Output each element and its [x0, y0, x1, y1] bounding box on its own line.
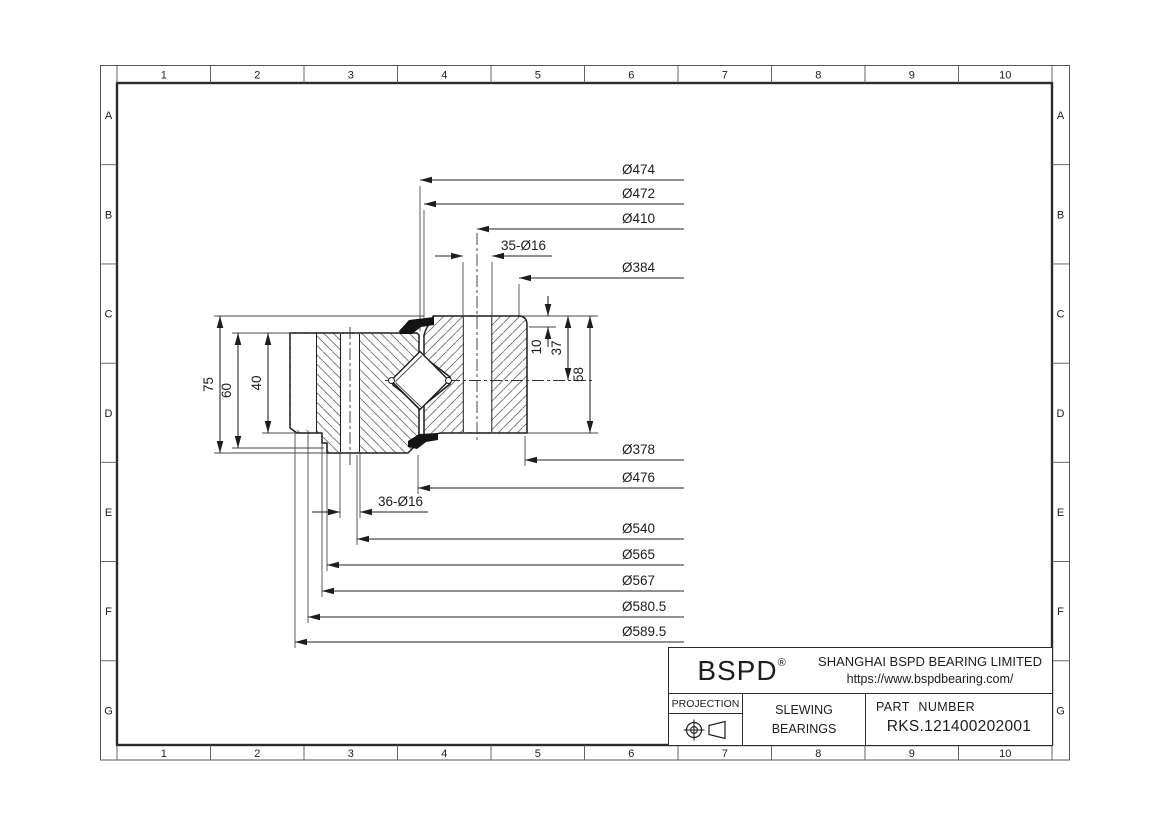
dim-label: 58	[571, 367, 586, 382]
grid-column-label: 10	[999, 70, 1011, 82]
title-block: BSPD® SHANGHAI BSPD BEARING LIMITED http…	[668, 647, 1053, 746]
product-line2: BEARINGS	[772, 720, 837, 739]
sheet-inner-border	[117, 83, 1052, 745]
grid-row-label: E	[105, 507, 112, 519]
drawing-sheet: 1122334455667788991010AABBCCDDEEFFGGØ474…	[0, 0, 1170, 827]
grid-row-label: A	[1057, 110, 1065, 122]
grid-column-label: 3	[348, 748, 354, 760]
grid-row-label: G	[104, 705, 113, 717]
dim-arrow	[420, 177, 432, 184]
title-block-company-row: BSPD® SHANGHAI BSPD BEARING LIMITED http…	[669, 648, 1052, 694]
product-line1: SLEWING	[775, 701, 833, 720]
dim-arrow	[451, 253, 463, 260]
dim-arrow	[418, 485, 430, 492]
grid-column-label: 4	[441, 748, 447, 760]
dim-arrow	[424, 201, 436, 208]
dim-arrow	[525, 457, 537, 464]
dim-arrow	[217, 441, 224, 453]
projection-label: PROJECTION	[669, 694, 742, 714]
grid-column-label: 9	[909, 70, 915, 82]
dim-label: 60	[219, 383, 234, 398]
dim-label: Ø378	[622, 442, 655, 457]
dim-label: 10	[529, 339, 544, 354]
grid-column-label: 2	[254, 748, 260, 760]
dim-label: Ø567	[622, 573, 655, 588]
grid-row-label: D	[1057, 408, 1065, 420]
dim-label: Ø384	[622, 260, 656, 275]
dim-arrow	[519, 275, 531, 282]
dim-arrow	[545, 304, 552, 316]
grid-column-label: 1	[161, 748, 167, 760]
dim-label: 40	[249, 375, 264, 390]
grid-row-label: G	[1056, 705, 1065, 717]
grid-column-label: 8	[815, 70, 821, 82]
dim-arrow	[265, 333, 272, 345]
dim-label: 36-Ø16	[378, 494, 423, 509]
ring-step-face	[291, 334, 316, 430]
part-number-cell: PART NUMBER RKS.121400202001	[866, 694, 1052, 745]
company-website: https://www.bspdbearing.com/	[814, 671, 1046, 687]
roller-corner-detail	[389, 378, 395, 384]
title-block-detail-row: PROJECTION SLEWING BEARINGS PART NUMBER	[669, 694, 1052, 745]
dim-arrow	[308, 614, 320, 621]
first-angle-projection-icon	[669, 714, 742, 745]
grid-column-label: 1	[161, 70, 167, 82]
company-info: SHANGHAI BSPD BEARING LIMITED https://ww…	[814, 654, 1052, 687]
grid-column-label: 7	[722, 748, 728, 760]
dim-arrow	[265, 421, 272, 433]
product-name: SLEWING BEARINGS	[743, 694, 866, 745]
grid-column-label: 6	[628, 748, 634, 760]
grid-row-label: F	[1057, 606, 1064, 618]
dim-arrow	[360, 509, 372, 516]
dim-arrow	[235, 333, 242, 345]
grid-row-label: B	[105, 209, 112, 221]
grid-column-label: 4	[441, 70, 447, 82]
grid-column-label: 6	[628, 70, 634, 82]
grid-column-label: 9	[909, 748, 915, 760]
dim-label: Ø565	[622, 547, 655, 562]
part-number-value: RKS.121400202001	[866, 718, 1052, 736]
grid-row-label: C	[1057, 309, 1065, 321]
dim-arrow	[477, 226, 489, 233]
dim-arrow	[587, 421, 594, 433]
company-name: SHANGHAI BSPD BEARING LIMITED	[814, 654, 1046, 671]
grid-column-label: 8	[815, 748, 821, 760]
grid-row-label: B	[1057, 209, 1064, 221]
dim-label: Ø589.5	[622, 624, 666, 639]
roller-corner-detail	[446, 378, 452, 384]
dim-arrow	[235, 436, 242, 448]
grid-column-label: 10	[999, 748, 1011, 760]
dim-label: Ø472	[622, 186, 655, 201]
dim-label: 37	[549, 340, 564, 355]
grid-column-label: 2	[254, 70, 260, 82]
grid-row-label: C	[105, 309, 113, 321]
grid-row-label: F	[105, 606, 112, 618]
grid-column-label: 7	[722, 70, 728, 82]
registered-mark-icon: ®	[778, 657, 786, 669]
grid-row-label: D	[105, 408, 113, 420]
dim-label: Ø580.5	[622, 599, 666, 614]
dim-label: Ø474	[622, 162, 656, 177]
dim-arrow	[327, 562, 339, 569]
dim-arrow	[328, 509, 340, 516]
dim-arrow	[587, 316, 594, 328]
dim-arrow	[565, 316, 572, 328]
grid-row-label: E	[1057, 507, 1064, 519]
dim-label: Ø410	[622, 211, 655, 226]
dim-label: 35-Ø16	[501, 238, 546, 253]
grid-column-label: 5	[535, 748, 541, 760]
grid-row-label: A	[105, 110, 113, 122]
grid-column-label: 5	[535, 70, 541, 82]
dim-arrow	[357, 536, 369, 543]
dim-label: Ø540	[622, 521, 655, 536]
dim-arrow	[217, 316, 224, 328]
dim-arrow	[545, 327, 552, 339]
part-number-label: PART NUMBER	[876, 700, 1052, 714]
dim-arrow	[492, 253, 504, 260]
company-logo: BSPD®	[669, 657, 814, 685]
bolt-hole-cut	[464, 317, 492, 432]
dim-label: Ø476	[622, 470, 655, 485]
grid-column-label: 3	[348, 70, 354, 82]
dim-label: 75	[201, 377, 216, 392]
logo-text: BSPD	[697, 655, 777, 686]
dim-arrow	[322, 588, 334, 595]
projection-cell: PROJECTION	[669, 694, 743, 745]
dim-arrow	[295, 639, 307, 646]
